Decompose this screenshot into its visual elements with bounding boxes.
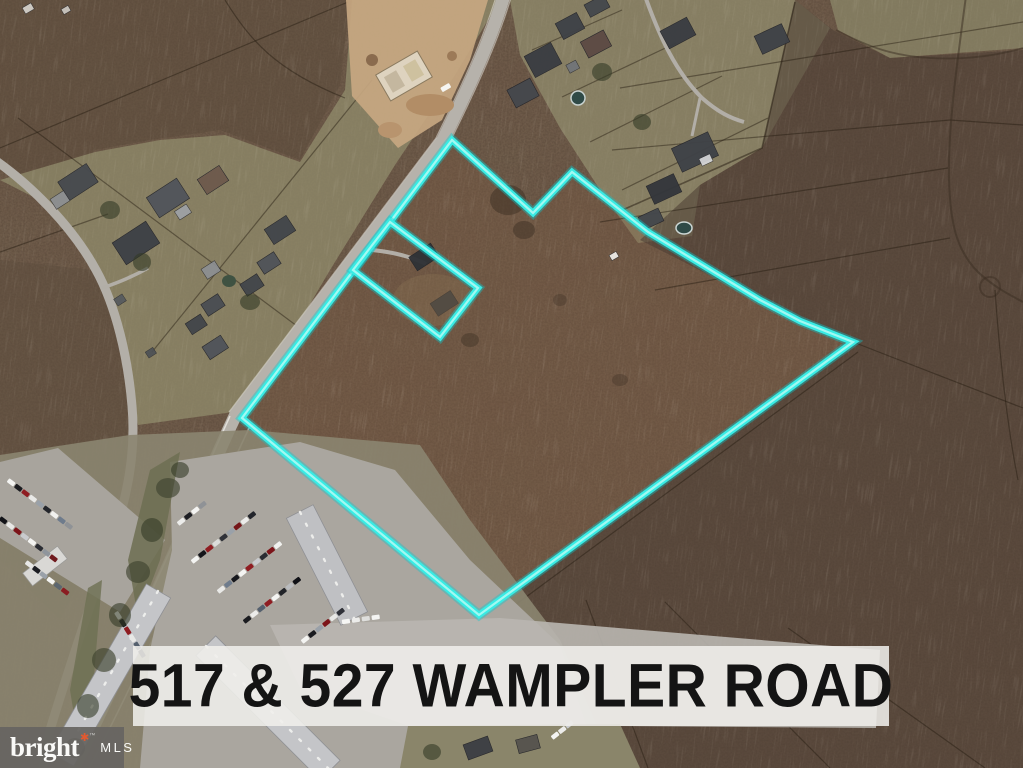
pond xyxy=(222,275,236,287)
brand-trademark: ™ xyxy=(89,733,95,739)
brand-watermark: bright✱™MLS xyxy=(0,727,124,768)
strip-below-banner xyxy=(400,720,640,768)
brand-star-icon: ✱ xyxy=(80,731,89,744)
pool xyxy=(571,91,585,105)
brand-suffix: MLS xyxy=(100,740,134,755)
brand-wordmark: bright xyxy=(10,732,79,763)
address-banner: 517 & 527 WAMPLER ROAD xyxy=(133,646,889,726)
listing-aerial-image: 517 & 527 WAMPLER ROAD bright✱™MLS xyxy=(0,0,1023,768)
address-banner-text: 517 & 527 WAMPLER ROAD xyxy=(129,650,894,721)
pool-2 xyxy=(676,222,692,234)
